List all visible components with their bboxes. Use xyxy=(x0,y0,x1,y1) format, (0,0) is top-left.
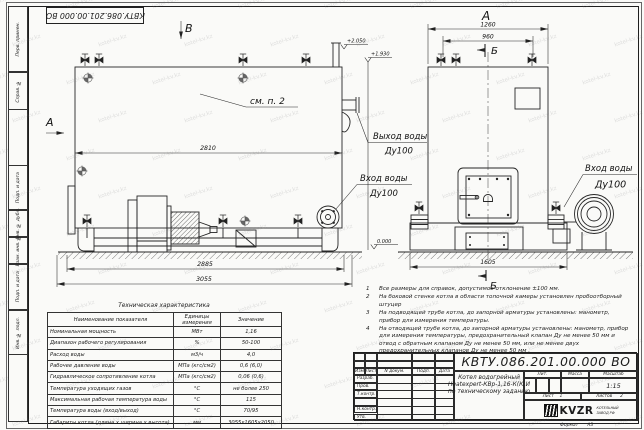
note-text: На подводящей трубе котла, до запорной а… xyxy=(379,310,632,325)
spec-value: 0,06 (0,6) xyxy=(221,372,282,383)
note-text: На боковой стенке котла в области топочн… xyxy=(379,294,632,309)
format-strip: Формат А3 xyxy=(560,423,593,428)
inlet-water-label-front: Вход воды xyxy=(585,164,633,174)
tb-sign-utv: Утв. xyxy=(354,414,377,422)
tb-sign-razrab: Разраб. xyxy=(354,375,377,383)
spec-name: Номинальная мощность xyxy=(48,327,174,338)
inlet-water-dn-front: Ду100 xyxy=(594,180,626,191)
outlet-water-dn: Ду100 xyxy=(384,147,413,157)
tb-sheet-cell: Лист 1 xyxy=(524,393,581,400)
tb-line xyxy=(377,398,454,399)
tb-company-cell: KVZR КОТЕЛЬНЫЙ ЗАВОД РФ xyxy=(524,400,638,421)
tb-header-data: Дата xyxy=(435,368,454,375)
note-item: 3На подводящей трубе котла, до запорной … xyxy=(366,310,632,325)
spec-header-value: Значение xyxy=(221,313,282,327)
tb-scale-label: Масштаб xyxy=(589,371,638,378)
note-number: 3 xyxy=(366,310,379,325)
kvzr-logo-text: KVZR xyxy=(560,405,594,417)
title-block: Изм Лист N докум. Подп. Дата Разраб. Про… xyxy=(353,352,637,420)
spec-name: Расход воды xyxy=(48,349,174,360)
doc-name-line1: Котел водогрейный xyxy=(458,375,520,382)
section-arrow-a-label: А xyxy=(45,116,54,129)
tb-mass-cell xyxy=(561,378,589,393)
spec-value: 3055х1605х2050 xyxy=(221,417,282,428)
spec-value: 70/95 xyxy=(221,406,282,417)
inlet-water-label-side: Вход воды xyxy=(360,174,408,184)
table-row: Диапазон рабочего регулирования%50-100 xyxy=(48,338,282,349)
tb-sign-tkontr: Т.контр. xyxy=(354,390,377,398)
spec-value: не более 250 xyxy=(221,383,282,394)
table-row: Максимальная рабочая температура воды°С1… xyxy=(48,394,282,405)
tb-cell xyxy=(435,361,454,368)
spec-value: 0,6 (6,0) xyxy=(221,360,282,371)
tb-header-ndoc: N докум. xyxy=(377,368,412,375)
tb-line xyxy=(377,383,454,384)
tb-header-izm: Изм xyxy=(354,368,365,375)
elevation-zero: 0.000 xyxy=(377,239,391,245)
dim-3055: 3055 xyxy=(196,276,212,283)
tb-cell xyxy=(365,353,377,361)
tb-sheets-value: 2 xyxy=(620,394,623,399)
spec-name: Максимальная рабочая температура воды xyxy=(48,394,174,405)
tb-scale-value: 1:15 xyxy=(589,378,638,393)
dim-1605: 1605 xyxy=(480,259,495,266)
tb-sheets-label: Листов xyxy=(596,394,612,399)
tb-sheet-label: Лист xyxy=(543,394,554,399)
table-row: Рабочее давление водыМПа (кгс/см2)0,6 (6… xyxy=(48,360,282,371)
spec-header-name: Наименование показателя xyxy=(48,313,174,327)
tb-line xyxy=(377,406,454,407)
tb-lit-cell xyxy=(536,378,548,393)
spec-units: °С xyxy=(174,394,221,405)
table-row: Температура воды (вход/выход)°С70/95 xyxy=(48,406,282,417)
tb-sign-nkontr: Н.контр. xyxy=(354,406,377,414)
tb-line xyxy=(377,390,454,391)
spec-units: °С xyxy=(174,406,221,417)
dim-2885: 2885 xyxy=(197,261,213,268)
company-name: КОТЕЛЬНЫЙ ЗАВОД РФ xyxy=(596,406,618,414)
company-line1: КОТЕЛЬНЫЙ xyxy=(596,406,618,410)
spec-units: МПа (кгс/см2) xyxy=(174,360,221,371)
tb-sheet-value: 1 xyxy=(560,394,563,399)
spec-value: 4,0 xyxy=(221,349,282,360)
spec-name: Температура воды (вход/выход) xyxy=(48,406,174,417)
spec-units: МВт xyxy=(174,327,221,338)
view-arrow-b-label: В xyxy=(185,22,193,35)
company-line2: ЗАВОД РФ xyxy=(596,411,618,415)
spec-value: 50-100 xyxy=(221,338,282,349)
drawing-sheet: Перв. примен. Справ. № Подп. и дата Инв.… xyxy=(0,0,644,430)
spec-units: МПа (кгс/см2) xyxy=(174,372,221,383)
spec-table-title: Техническая характеристика xyxy=(47,303,281,309)
tb-sheets-cell: Листов 2 xyxy=(581,393,638,400)
spec-name: Гидравлическое сопротивление котла xyxy=(48,372,174,383)
format-label: Формат xyxy=(560,423,578,428)
elevation-outlet: +1.930 xyxy=(371,52,390,58)
tb-cell xyxy=(365,361,377,368)
front-view-linework xyxy=(398,52,633,264)
spec-units: м3/ч xyxy=(174,349,221,360)
spec-units: мм xyxy=(174,417,221,428)
table-row: Габариты котла (длина х ширина х высота)… xyxy=(48,417,282,428)
spec-header-units: Единицы измерения xyxy=(174,313,221,327)
table-row: Номинальная мощностьМВт1,16 xyxy=(48,327,282,338)
tb-line xyxy=(377,414,454,415)
table-row: Температура уходящих газов°Сне более 250 xyxy=(48,383,282,394)
spec-name: Диапазон рабочего регулирования xyxy=(48,338,174,349)
spec-table: Наименование показателя Единицы измерени… xyxy=(47,312,282,429)
note-item: 1Все размеры для справок, допустимое отк… xyxy=(366,286,632,293)
doc-name-line2: Heatexpert-КВр-1,16-К(К)И xyxy=(448,382,530,389)
note-item: 2На боковой стенке котла в области топоч… xyxy=(366,294,632,309)
tb-cell xyxy=(435,353,454,361)
tb-cell xyxy=(354,353,365,361)
elevation-top: +2.050 xyxy=(347,39,366,45)
table-row: Гидравлическое сопротивление котлаМПа (к… xyxy=(48,372,282,383)
spec-name: Рабочее давление воды xyxy=(48,360,174,371)
tb-header-list: Лист xyxy=(365,368,377,375)
tb-lit-label: Лит. xyxy=(524,371,561,378)
spec-units: % xyxy=(174,338,221,349)
doc-name-line3: по техническому заданию xyxy=(448,389,530,396)
tb-mass-label: Масса xyxy=(561,371,589,378)
notes-list: 1Все размеры для справок, допустимое отк… xyxy=(366,286,632,357)
note-number: 2 xyxy=(366,294,379,309)
spec-name: Габариты котла (длина х ширина х высота) xyxy=(48,417,174,428)
tb-designation: КВТУ.086.201.00.000 ВО xyxy=(454,353,638,371)
tb-document-name: Котел водогрейный Heatexpert-КВр-1,16-К(… xyxy=(454,371,524,421)
spec-name: Температура уходящих газов xyxy=(48,383,174,394)
dim-1260: 1260 xyxy=(480,22,495,29)
dim-2810: 2810 xyxy=(200,145,216,152)
tb-cell xyxy=(377,353,412,361)
section-b-top-label: Б xyxy=(491,46,498,57)
note-number: 1 xyxy=(366,286,379,293)
tb-cell xyxy=(377,361,412,368)
tb-cell xyxy=(354,361,365,368)
spec-value: 115 xyxy=(221,394,282,405)
tb-header-podp: Подп. xyxy=(412,368,435,375)
tb-cell xyxy=(412,353,435,361)
kvzr-logo-icon xyxy=(544,404,558,417)
spec-units: °С xyxy=(174,383,221,394)
note-text: Все размеры для справок, допустимое откл… xyxy=(379,286,632,293)
spec-value: 1,16 xyxy=(221,327,282,338)
tb-lit-cell xyxy=(524,378,536,393)
tb-cell xyxy=(412,361,435,368)
inlet-water-dn-side: Ду100 xyxy=(369,189,398,199)
tb-sign-prov: Пров. xyxy=(354,383,377,391)
dim-960: 960 xyxy=(482,34,494,41)
tb-sign-empty xyxy=(354,398,377,406)
format-value: А3 xyxy=(587,423,593,428)
callout-see-p2: см. п. 2 xyxy=(250,97,285,107)
outlet-water-label: Выход воды xyxy=(373,132,427,142)
tb-lit-cell xyxy=(549,378,561,393)
table-row: Расход водым3/ч4,0 xyxy=(48,349,282,360)
